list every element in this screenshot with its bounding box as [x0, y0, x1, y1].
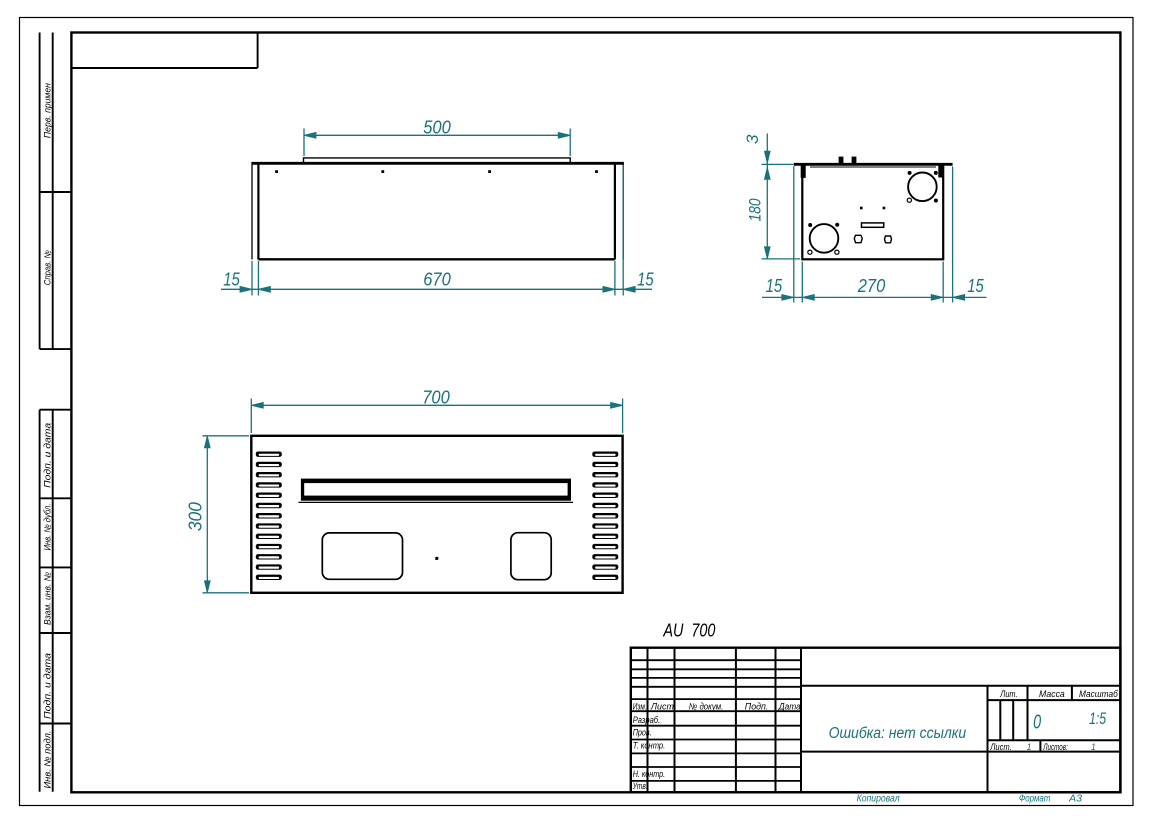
svg-text:300: 300 — [186, 502, 206, 531]
svg-text:№ докум.: № докум. — [689, 701, 724, 711]
svg-text:Изм.: Изм. — [633, 701, 647, 711]
svg-text:Копировал: Копировал — [857, 793, 900, 805]
svg-text:Дата: Дата — [778, 701, 801, 711]
svg-text:670: 670 — [423, 269, 451, 290]
svg-text:15: 15 — [967, 275, 984, 296]
svg-text:Масса: Масса — [1039, 689, 1065, 699]
svg-text:AU 700: AU 700 — [663, 620, 716, 640]
svg-text:Взам. инв. №: Взам. инв. № — [42, 572, 52, 625]
svg-text:А3: А3 — [1068, 793, 1082, 805]
svg-text:Разраб.: Разраб. — [633, 715, 661, 725]
svg-text:Утв.: Утв. — [632, 781, 648, 791]
svg-text:Подп. и дата: Подп. и дата — [42, 423, 52, 488]
svg-text:Справ. №: Справ. № — [42, 250, 52, 285]
svg-text:Масштаб: Масштаб — [1079, 689, 1119, 699]
svg-text:Лит.: Лит. — [999, 689, 1017, 699]
svg-text:3: 3 — [743, 134, 762, 144]
svg-text:Листов:: Листов: — [1043, 742, 1069, 752]
svg-text:500: 500 — [423, 116, 451, 137]
svg-text:1:5: 1:5 — [1089, 709, 1106, 728]
svg-text:Ошибка: нет ссылки: Ошибка: нет ссылки — [829, 725, 967, 742]
svg-text:Подп.: Подп. — [745, 701, 769, 711]
svg-text:Лист: Лист — [650, 701, 674, 711]
svg-text:15: 15 — [223, 269, 240, 290]
svg-text:Инв. № дубл.: Инв. № дубл. — [42, 504, 52, 551]
svg-text:Формат: Формат — [1019, 793, 1051, 805]
svg-text:Лист.: Лист. — [989, 742, 1011, 752]
svg-text:180: 180 — [746, 198, 765, 221]
svg-text:15: 15 — [766, 275, 783, 296]
svg-text:Перв. примен: Перв. примен — [42, 83, 52, 138]
svg-text:0: 0 — [1033, 712, 1041, 734]
svg-text:Н. контр.: Н. контр. — [633, 769, 666, 779]
svg-text:Инв. № подл.: Инв. № подл. — [42, 731, 52, 789]
svg-text:Подп. и дата: Подп. и дата — [42, 653, 52, 719]
svg-text:1: 1 — [1091, 742, 1096, 752]
svg-text:15: 15 — [637, 269, 654, 290]
svg-text:270: 270 — [857, 275, 886, 296]
svg-text:1: 1 — [1026, 742, 1031, 752]
svg-text:Т. контр.: Т. контр. — [633, 741, 666, 751]
svg-text:Пров.: Пров. — [633, 728, 652, 738]
svg-text:700: 700 — [422, 386, 450, 407]
